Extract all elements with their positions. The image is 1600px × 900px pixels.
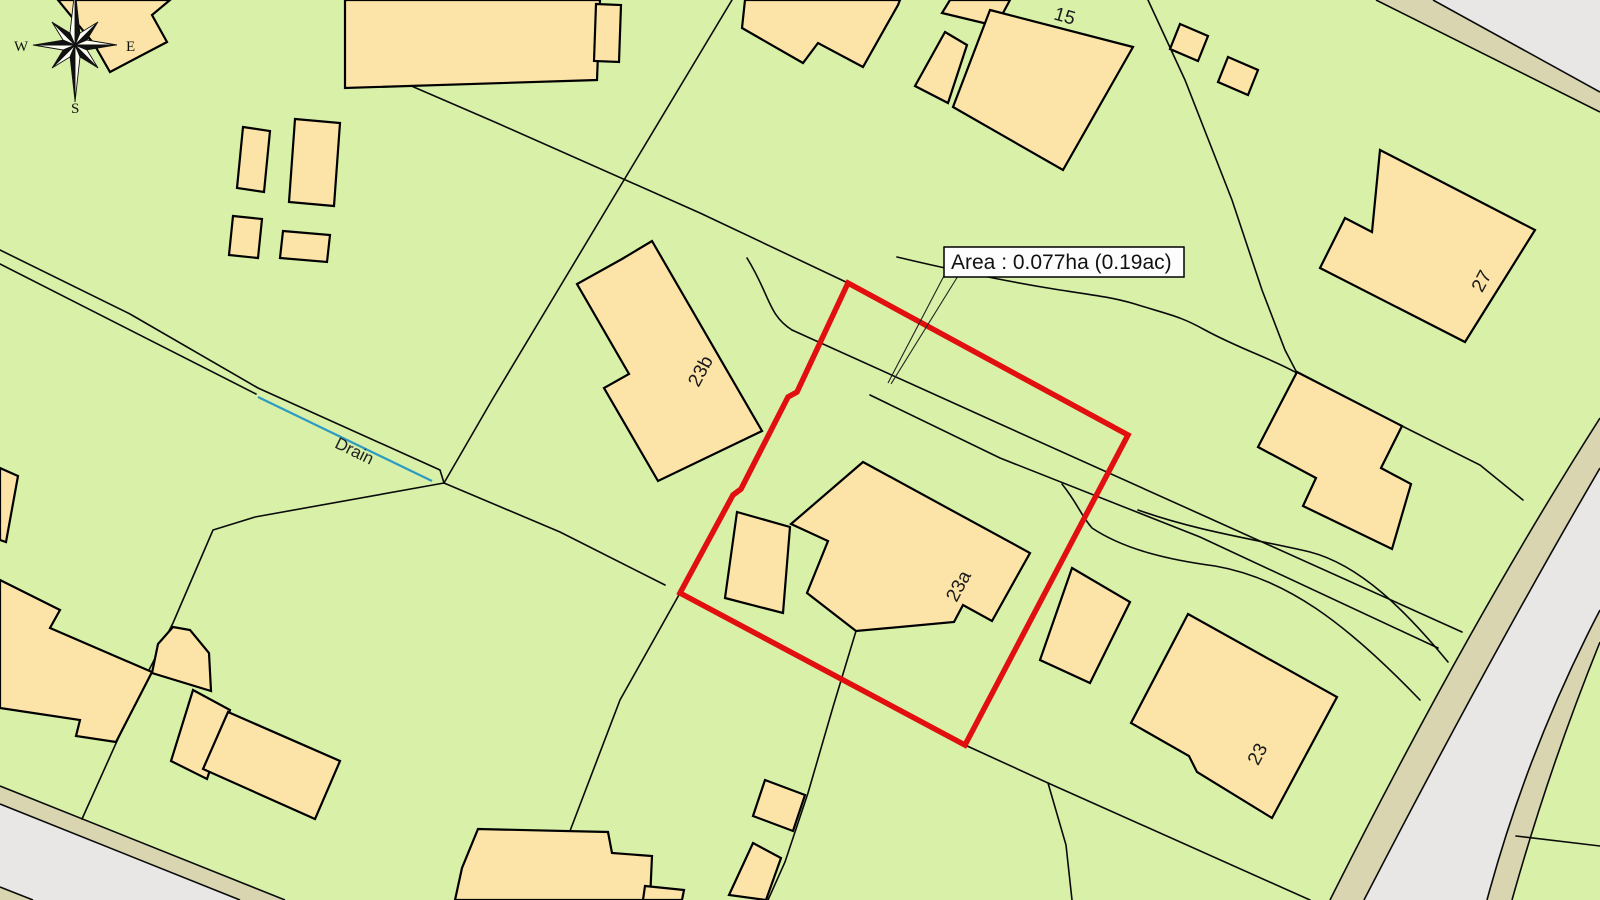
- building: [237, 127, 270, 192]
- building: [345, 0, 600, 88]
- compass-west-label: W: [14, 39, 29, 55]
- building: [594, 4, 621, 62]
- building: [229, 216, 262, 258]
- map-canvas[interactable]: 15 27 23b 23a 23 Drain Area : 0.077ha (0…: [0, 0, 1600, 900]
- outbuilding: [725, 512, 790, 613]
- compass-south-label: S: [71, 101, 79, 117]
- building: [280, 231, 330, 262]
- area-label-text: Area : 0.077ha (0.19ac): [951, 251, 1172, 274]
- building: [289, 119, 340, 206]
- compass-east-label: E: [126, 39, 135, 55]
- site-plan-map[interactable]: 15 27 23b 23a 23 Drain Area : 0.077ha (0…: [0, 0, 1600, 900]
